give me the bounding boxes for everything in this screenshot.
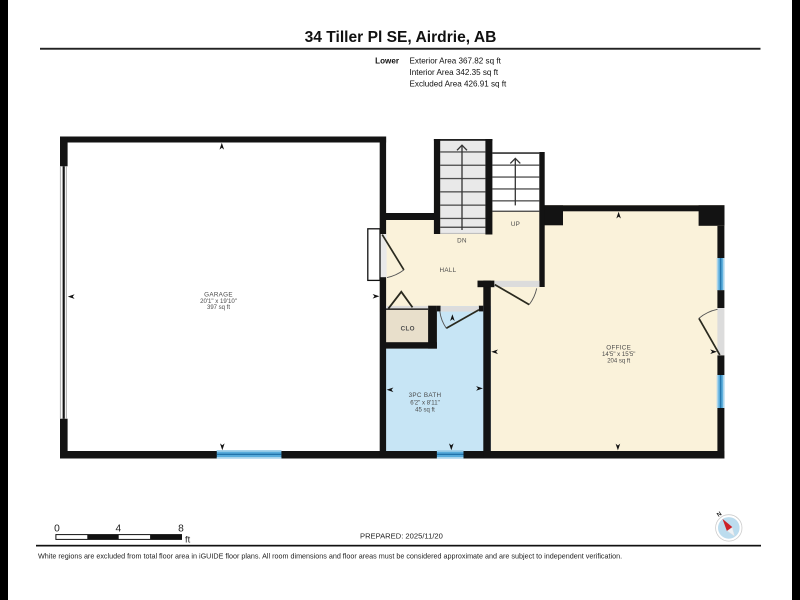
svg-text:4: 4 bbox=[115, 524, 121, 535]
svg-text:204 sq ft: 204 sq ft bbox=[607, 359, 630, 365]
svg-text:Lower: Lower bbox=[375, 56, 400, 65]
svg-text:0: 0 bbox=[54, 524, 60, 535]
svg-text:UP: UP bbox=[511, 221, 520, 228]
svg-text:45 sq ft: 45 sq ft bbox=[415, 407, 435, 413]
svg-text:34 Tiller Pl SE, Airdrie, AB: 34 Tiller Pl SE, Airdrie, AB bbox=[305, 29, 497, 46]
svg-text:397 sq ft: 397 sq ft bbox=[207, 305, 230, 311]
svg-text:DN: DN bbox=[457, 238, 467, 245]
svg-text:PREPARED: 2025/11/20: PREPARED: 2025/11/20 bbox=[360, 531, 443, 540]
svg-text:CLO: CLO bbox=[401, 326, 415, 333]
svg-text:White regions are excluded fro: White regions are excluded from total fl… bbox=[38, 552, 622, 561]
svg-text:HALL: HALL bbox=[440, 267, 457, 274]
svg-text:ft: ft bbox=[185, 534, 191, 545]
svg-text:Excluded Area 426.91 sq ft: Excluded Area 426.91 sq ft bbox=[410, 80, 507, 89]
svg-text:Exterior Area 367.82 sq ft: Exterior Area 367.82 sq ft bbox=[410, 56, 502, 65]
svg-text:Interior Area 342.35 sq ft: Interior Area 342.35 sq ft bbox=[410, 68, 499, 77]
svg-text:6'2" x 8'11": 6'2" x 8'11" bbox=[410, 399, 440, 406]
svg-text:14'5" x 15'5": 14'5" x 15'5" bbox=[602, 351, 635, 358]
svg-text:8: 8 bbox=[178, 524, 184, 535]
svg-text:20'1" x 19'10": 20'1" x 19'10" bbox=[200, 298, 237, 305]
svg-text:3PC BATH: 3PC BATH bbox=[409, 392, 442, 399]
